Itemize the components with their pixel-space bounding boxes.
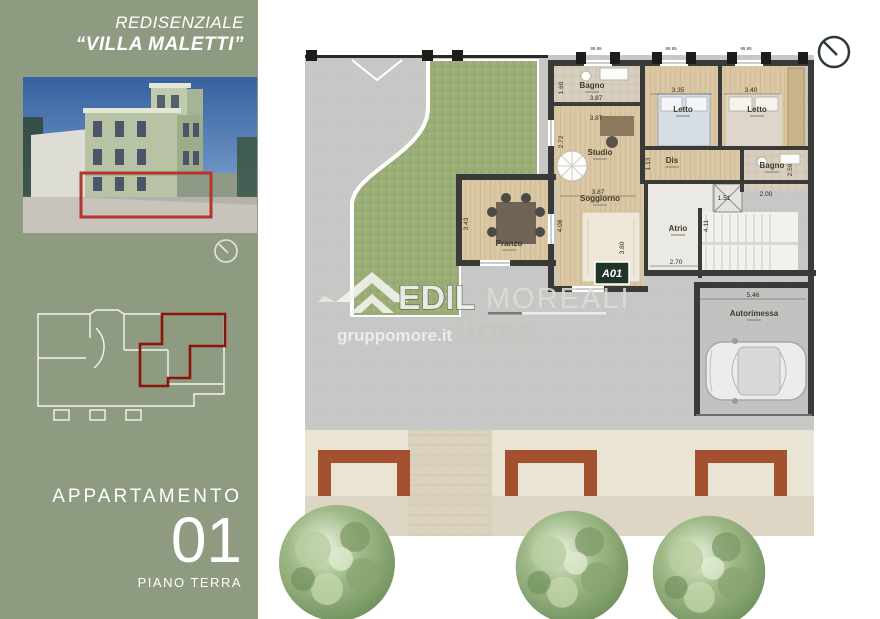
apartment-number: 01 <box>52 510 242 571</box>
dim-letto-b-w: 3.40 <box>745 87 758 94</box>
project-title-line1: REDISENZIALE <box>76 12 244 33</box>
dim-letto-a-w: 3.35 <box>672 87 685 94</box>
tree <box>279 505 395 619</box>
dim-dis-h: 1.13 <box>645 157 652 170</box>
dim-studio-h: 2.72 <box>558 135 565 148</box>
room-label-letto-b: Letto <box>747 105 767 114</box>
dim-bagno2-h: 2.59 <box>787 163 794 176</box>
room-label-pranzo: Pranzo <box>496 239 523 248</box>
watermark-brand-bold: EDIL <box>398 279 475 317</box>
dim-atrio-w: 2.70 <box>670 259 683 266</box>
hedge <box>177 173 237 197</box>
dim-bagno-w: 3.87 <box>590 95 603 102</box>
watermark-brand-serif: MOREALI <box>486 283 631 315</box>
dim-window-tiny: 95 95 <box>665 46 677 51</box>
dim-soggiorno-h2: 3.80 <box>619 241 626 254</box>
dining-table <box>496 202 536 244</box>
north-indicator-small-icon <box>211 236 241 266</box>
dim-soggiorno-h: 4.08 <box>557 219 564 232</box>
dim-atrio-h: 4.11 <box>703 220 710 233</box>
dim-studio-w: 3.87 <box>590 115 603 122</box>
room-label-bagno-top: Bagno <box>580 81 605 90</box>
dim-bagno-h: 1.60 <box>558 81 565 94</box>
north-indicator-icon <box>819 37 849 67</box>
unit-badge-label: A01 <box>601 268 622 280</box>
dim-soggiorno-w: 3.87 <box>592 189 605 196</box>
sidebar-panel: REDISENZIALE “VILLA MALETTI” <box>0 0 258 619</box>
dim-garage-w: 5.46 <box>747 292 760 299</box>
watermark-brand-secondary: MORE <box>456 320 537 346</box>
dim-window-tiny: 95 95 <box>740 46 752 51</box>
room-label-autorimessa: Autorimessa <box>730 309 779 318</box>
watermark-site: gruppomore.it <box>337 326 453 345</box>
wardrobe <box>788 68 804 148</box>
dim-bagno2-w: 2.00 <box>760 191 773 198</box>
desk <box>600 116 634 136</box>
car-top-view <box>706 338 806 404</box>
brochure-page: A01 Bagno Letto Letto Studio Dis Bagno S… <box>0 0 880 619</box>
tree <box>516 511 629 619</box>
dim-elevator-w: 1.51 <box>718 195 731 202</box>
key-plan <box>28 298 243 428</box>
room-label-atrio: Atrio <box>669 224 688 233</box>
room-label-studio: Studio <box>588 148 613 157</box>
unit-badge: A01 <box>595 262 629 284</box>
dim-window-tiny: 95 95 <box>590 46 602 51</box>
project-title-line2: “VILLA MALETTI” <box>76 33 244 57</box>
dim-pranzo-h: 3.43 <box>463 217 470 230</box>
room-label-dis: Dis <box>666 156 679 165</box>
building-render <box>23 77 257 233</box>
apartment-block: APPARTAMENTO 01 PIANO TERRA <box>52 486 242 590</box>
floor-label: PIANO TERRA <box>52 575 242 590</box>
room-label-bagno-right: Bagno <box>760 161 785 170</box>
key-plan-outline <box>38 310 224 420</box>
room-label-letto-a: Letto <box>673 105 693 114</box>
project-title: REDISENZIALE “VILLA MALETTI” <box>76 12 244 57</box>
